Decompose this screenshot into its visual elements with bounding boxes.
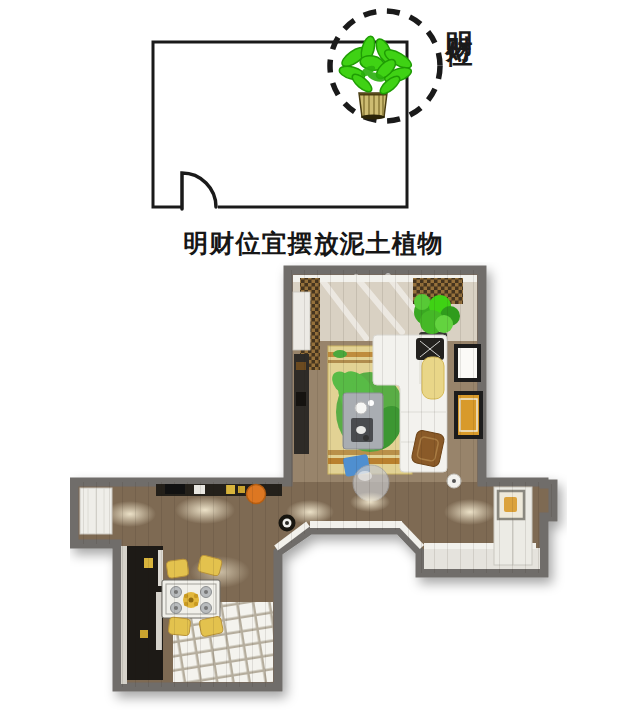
floor-plank-texture [70,262,567,724]
fengshui-infographic: 明财位 明财位宜摆放泥土植物 [0,0,627,724]
wealth-position-diagram [140,5,490,233]
caption-text: 明财位宜摆放泥土植物 [0,227,627,260]
wealth-position-label: 明财位 [445,10,472,22]
floor-plan-render [70,262,567,724]
door-opening [181,203,218,211]
